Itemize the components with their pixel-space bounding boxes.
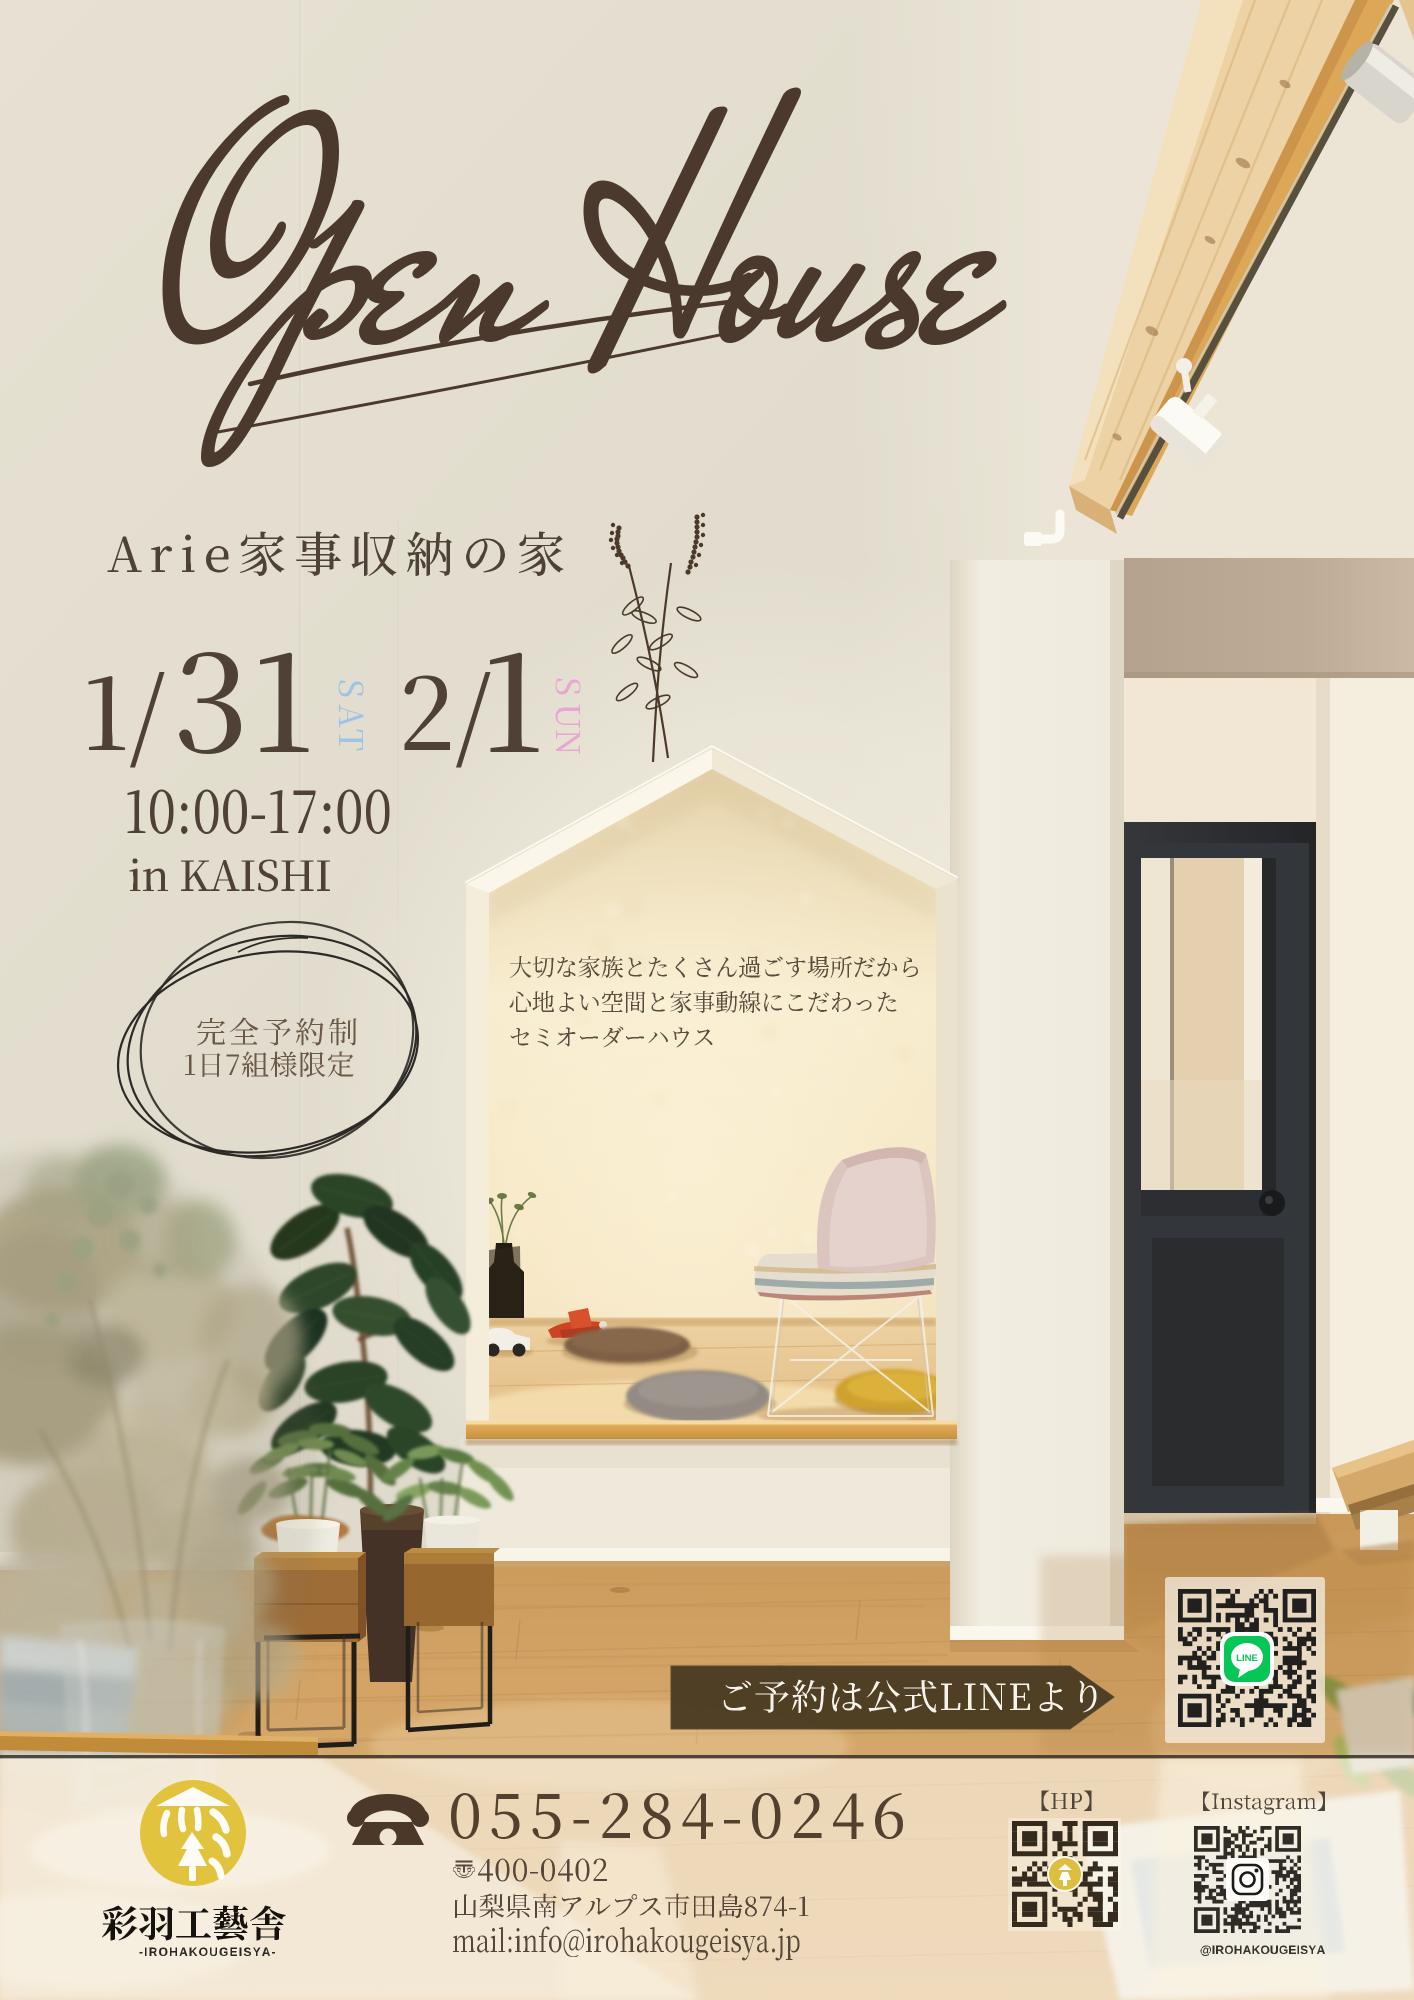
svg-text:LINE: LINE [1236,1653,1258,1664]
